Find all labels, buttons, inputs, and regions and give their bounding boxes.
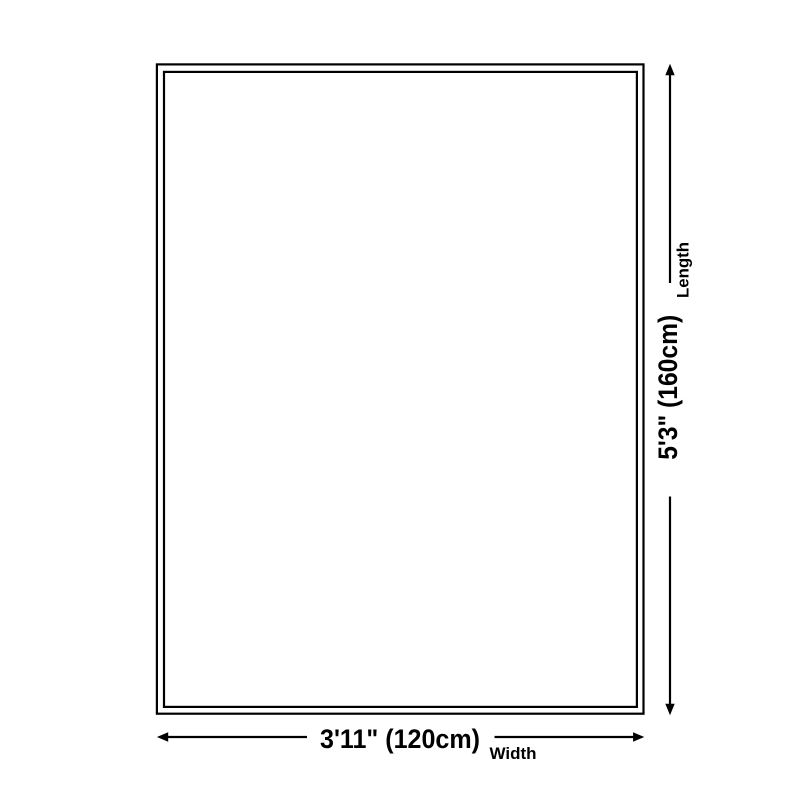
svg-text:5'3" (160cm): 5'3" (160cm) [653, 315, 683, 460]
svg-text:Length: Length [675, 242, 693, 298]
svg-text:Width: Width [490, 745, 537, 763]
svg-text:3'11" (120cm): 3'11" (120cm) [320, 724, 480, 754]
